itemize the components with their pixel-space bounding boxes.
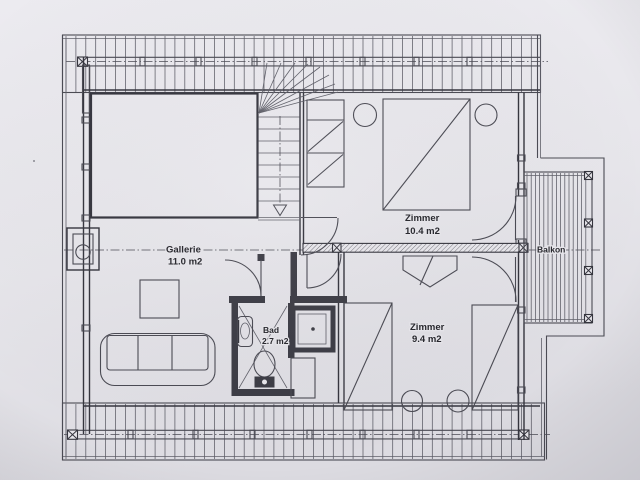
floor-plan-drawing: Balkon Zimmer 10.4 m2 [0,0,640,480]
floor-plan-photo: Balkon Zimmer 10.4 m2 [0,0,640,480]
photo-vignette [0,0,640,480]
